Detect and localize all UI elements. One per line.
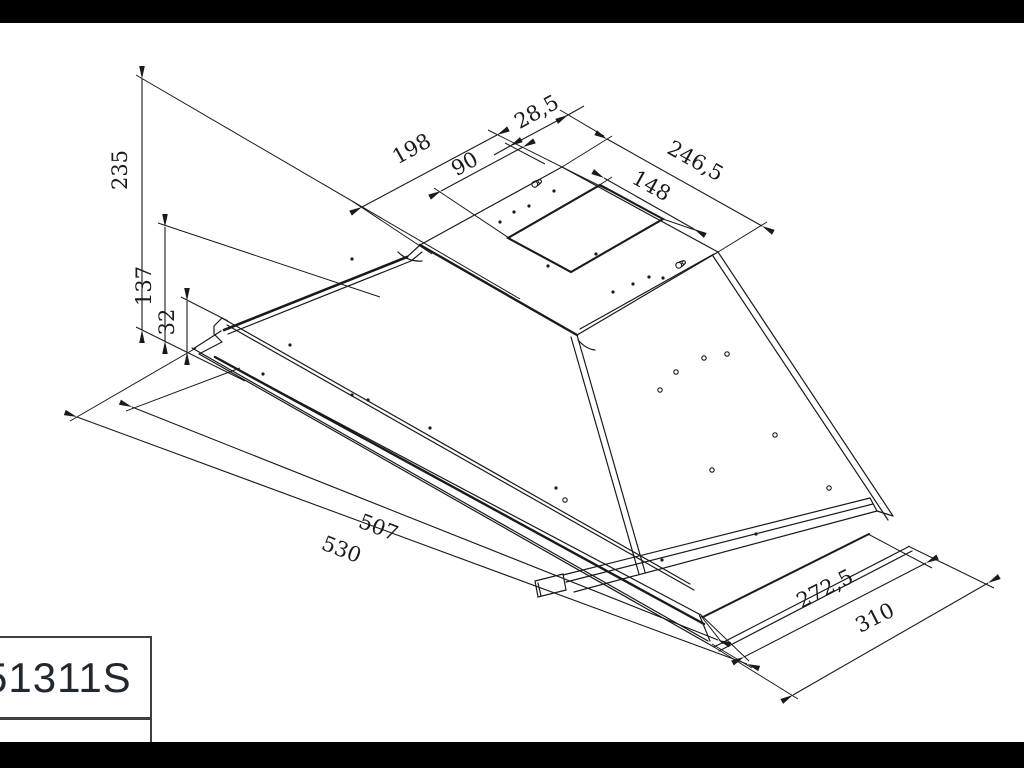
dim-outer-length: 530 [318,531,364,568]
dim-inner-length: 507 [355,509,401,546]
extension-lines [70,75,994,699]
dim-total-height: 235 [108,150,132,190]
dim-inner-width: 272,5 [793,564,857,613]
dim-top-rear-offset: 198 [388,129,435,169]
dim-front-lip-height: 32 [155,309,179,336]
letterbox-top-bar [0,0,1024,23]
hole-dots [261,189,757,561]
dim-cutout-width: 90 [447,147,482,181]
technical-drawing: 235 137 32 198 90 28,5 246,5 148 507 530… [0,0,1024,768]
letterbox-bottom-bar [0,742,1024,768]
dim-top-panel-length: 246,5 [663,136,727,186]
right-end-panel [713,252,893,520]
dim-cutout-length: 148 [628,166,675,206]
dim-mid-height: 137 [132,266,156,306]
top-panel [420,167,718,335]
front-slope [224,245,645,574]
model-number: 51311S [0,654,132,702]
hood-object-outline [192,167,912,651]
dimension-lines [77,79,988,695]
front-lip [193,318,694,590]
dim-outer-width: 310 [852,598,899,638]
dim-cutout-front-offset: 28,5 [510,90,563,134]
title-block-model-cell: 51311S [0,636,152,719]
